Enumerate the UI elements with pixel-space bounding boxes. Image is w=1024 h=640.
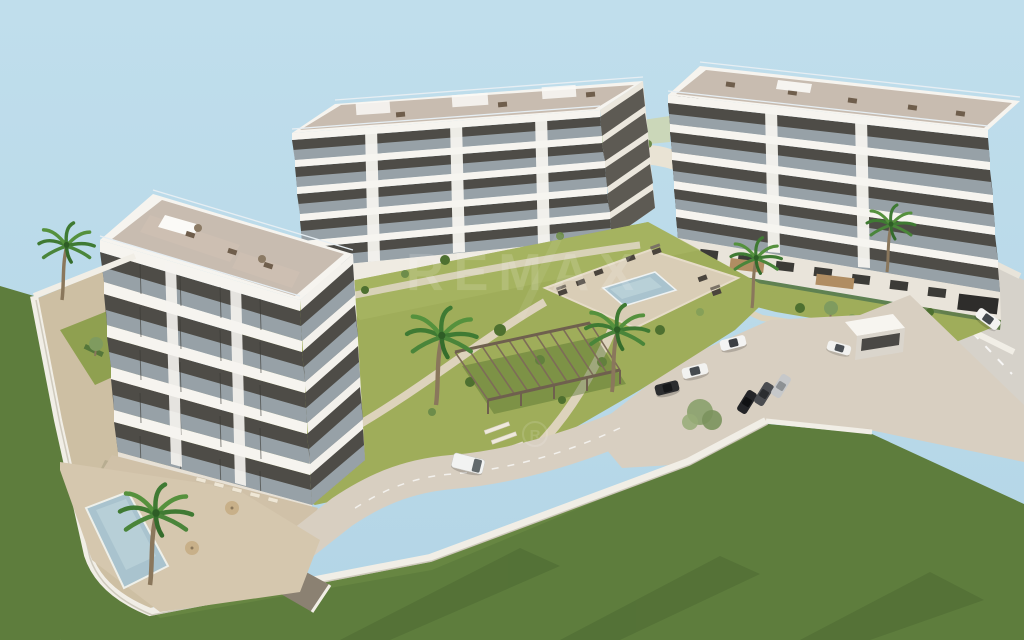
aerial-render: REMAX R bbox=[0, 0, 1024, 640]
watermark-roundel-letter: R bbox=[530, 427, 541, 444]
watermark-text: REMAX bbox=[406, 244, 644, 302]
